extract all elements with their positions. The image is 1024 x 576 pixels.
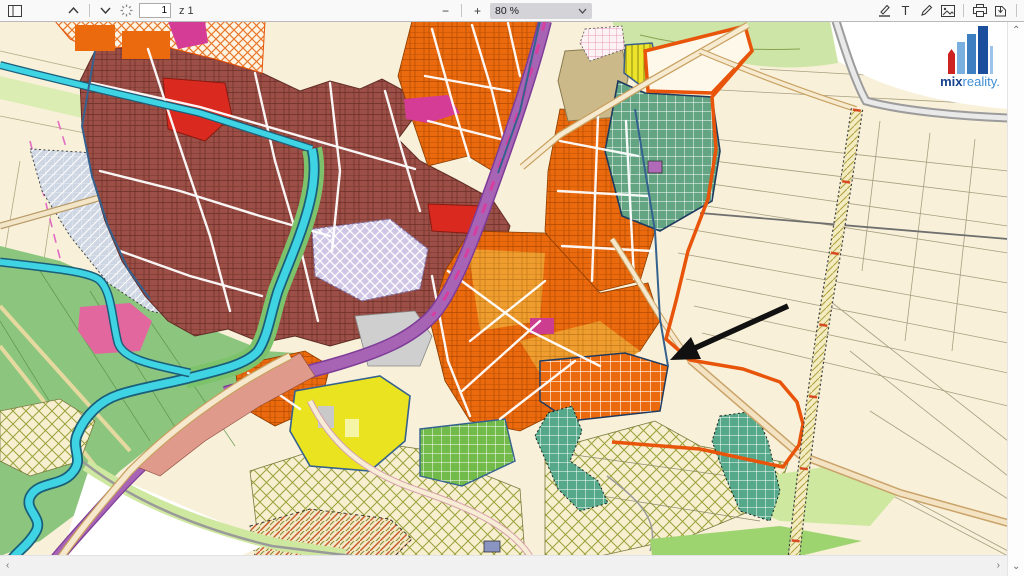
toolbar-zoom-group: − + 80 %	[437, 0, 592, 21]
zoning-map	[0, 21, 1008, 556]
horizontal-scrollbar[interactable]: ‹ ›	[0, 555, 1008, 576]
purple-parcel-small	[648, 161, 662, 173]
chevron-down-icon	[578, 8, 587, 14]
zoom-out-button[interactable]: −	[437, 2, 454, 19]
text-tool-icon: T	[902, 4, 910, 17]
loading-spinner	[118, 2, 135, 19]
zoom-in-button[interactable]: +	[469, 2, 486, 19]
zoom-level-dropdown[interactable]: 80 %	[490, 3, 592, 19]
logo-mix-label: mix	[940, 74, 962, 89]
previous-page-button[interactable]	[65, 2, 82, 19]
logo-reality-label: reality.	[963, 74, 1000, 89]
white-parcel-small	[345, 419, 359, 437]
chevron-down-icon	[100, 7, 111, 14]
vertical-scrollbar[interactable]: ⌃ ⌄	[1007, 21, 1024, 576]
page-number-input[interactable]	[139, 3, 171, 18]
scroll-up-arrow[interactable]: ⌃	[1012, 26, 1020, 36]
page-count-label: z 1	[179, 5, 194, 17]
sidebar-toggle-button[interactable]	[6, 2, 23, 19]
scroll-right-arrow[interactable]: ›	[997, 561, 1000, 571]
mixreality-logo: mixreality.	[928, 26, 1008, 104]
highlight-tool-button[interactable]	[876, 2, 893, 19]
draw-tool-button[interactable]	[918, 2, 935, 19]
highlighter-icon	[878, 4, 891, 17]
next-page-button[interactable]	[97, 2, 114, 19]
plus-icon: +	[474, 5, 481, 17]
save-icon	[994, 4, 1007, 17]
pen-icon	[920, 4, 933, 17]
text-tool-button[interactable]: T	[897, 2, 914, 19]
minus-icon: −	[442, 5, 449, 17]
zoom-level-value: 80 %	[495, 5, 519, 17]
scroll-left-arrow[interactable]: ‹	[6, 561, 9, 571]
toolbar-left-group: z 1	[6, 0, 194, 21]
save-button[interactable]	[992, 2, 1009, 19]
print-icon	[973, 4, 987, 17]
toolbar-tools-group: T	[876, 0, 1024, 21]
pdf-viewer-window: z 1 − + 80 %	[0, 0, 1024, 576]
toolbar: z 1 − + 80 %	[0, 0, 1024, 22]
scroll-down-arrow[interactable]: ⌄	[1012, 562, 1020, 572]
logo-text: mixreality.	[940, 75, 1000, 88]
orange-parcel	[122, 31, 170, 59]
sidebar-toggle-icon	[8, 5, 22, 17]
print-button[interactable]	[971, 2, 988, 19]
spinner-icon	[120, 4, 133, 17]
document-page[interactable]: mixreality.	[0, 21, 1008, 556]
image-tool-button[interactable]	[939, 2, 956, 19]
blue-parcel-small	[484, 541, 500, 552]
orange-parcel	[75, 25, 115, 51]
chevron-up-icon	[68, 7, 79, 14]
logo-buildings-icon	[947, 26, 993, 74]
image-icon	[941, 5, 955, 17]
